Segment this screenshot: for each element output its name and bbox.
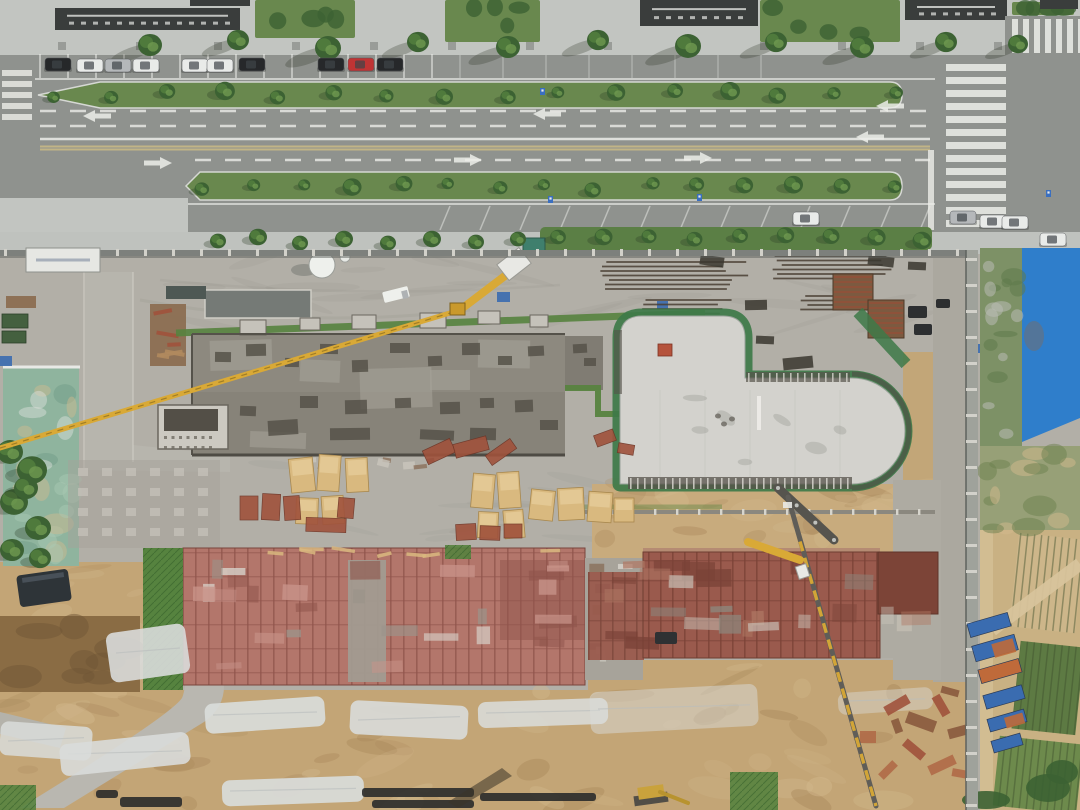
slab-void: [395, 398, 411, 409]
car: [376, 58, 404, 72]
wall-post: [956, 249, 959, 256]
pile-cap: [78, 528, 88, 536]
plywood-stack: [471, 473, 496, 509]
wall-post: [536, 249, 539, 256]
pile-cap: [102, 508, 112, 516]
formwork-pile: [908, 262, 926, 271]
wall-post: [788, 249, 791, 256]
wall-post: [896, 509, 898, 515]
pipe-stack: [96, 790, 118, 798]
plywood-stack: [528, 489, 555, 521]
construction-site: [0, 248, 986, 810]
pile-cap: [198, 468, 208, 476]
pile-cap: [174, 528, 184, 536]
crosswalk-stripe: [1056, 19, 1062, 53]
wall-post: [4, 249, 7, 256]
pile-cap: [174, 468, 184, 476]
stop-line: [928, 150, 934, 230]
pile-cap: [150, 488, 160, 496]
dumpster: [2, 331, 26, 343]
wall-post: [284, 249, 287, 256]
pile-cap: [174, 508, 184, 516]
pile-cap: [78, 488, 88, 496]
formwork-stack: [480, 526, 500, 541]
debris-pile: [6, 296, 36, 308]
stair-core: [352, 315, 376, 329]
red-building-east-end: [878, 552, 938, 614]
east-surroundings: [962, 248, 1080, 810]
slab-void: [528, 346, 544, 357]
tree-pit: [370, 42, 378, 50]
formwork-stack: [283, 495, 301, 520]
wall-post: [228, 249, 231, 256]
formwork-pile: [745, 300, 767, 311]
wall-post: [732, 249, 735, 256]
crosswalk-stripe: [1034, 19, 1040, 53]
slab-void: [440, 402, 460, 414]
wall-post: [480, 249, 483, 256]
plastic-sheeting: [589, 684, 759, 735]
slab-white-strip: [757, 396, 761, 430]
fence-post: [966, 596, 977, 599]
crane-cab: [450, 303, 465, 315]
crosswalk-stripe: [2, 70, 32, 76]
fence-post: [966, 258, 977, 261]
fence-post: [966, 570, 977, 573]
wall-post: [900, 249, 903, 256]
wall-post: [508, 249, 511, 256]
crosswalk-stripe: [2, 103, 32, 109]
formwork-stack: [261, 494, 280, 521]
pile-cap: [126, 488, 136, 496]
fence-post: [966, 804, 977, 807]
car: [44, 58, 72, 72]
wall-post: [742, 509, 744, 515]
slab-void: [480, 398, 494, 408]
wall-post: [928, 249, 931, 256]
pile-cap: [102, 468, 112, 476]
fence-post: [966, 752, 977, 755]
fence-post: [966, 336, 977, 339]
wall-post: [874, 509, 876, 515]
wall-post: [256, 249, 259, 256]
fence-post: [966, 388, 977, 391]
shoring-edge-south: [628, 477, 852, 489]
basement-opening: [164, 409, 218, 431]
wall-post: [676, 249, 679, 256]
formwork-pile: [756, 336, 774, 345]
red-container: [658, 344, 672, 356]
bus-shelter: [523, 238, 545, 252]
flat-roof-building: [640, 0, 758, 26]
car: [76, 59, 104, 73]
crosswalk-stripe: [946, 64, 1006, 71]
formwork-stack: [456, 523, 477, 540]
car: [792, 212, 820, 226]
slab-void: [573, 344, 587, 354]
car: [1001, 216, 1029, 230]
wall-post: [172, 249, 175, 256]
crosswalk-stripe: [946, 155, 1006, 162]
plywood-stack: [614, 498, 634, 522]
pile-cap: [102, 488, 112, 496]
pile-cap: [126, 468, 136, 476]
wall-post: [816, 249, 819, 256]
wall-post: [564, 249, 567, 256]
crosswalk-stripe: [2, 81, 32, 87]
flat-roof-building: [190, 0, 250, 6]
crosswalk-stripe: [946, 90, 1006, 97]
parked-van: [936, 299, 950, 308]
flat-roof-building: [905, 0, 1007, 20]
fence-post: [966, 492, 977, 495]
wall-post: [592, 249, 595, 256]
pile-cap: [126, 508, 136, 516]
fence-post: [966, 674, 977, 677]
wall-post: [698, 509, 700, 515]
pile-cap: [150, 468, 160, 476]
wall-post: [830, 509, 832, 515]
tree-pit: [292, 42, 300, 50]
wall-post: [760, 249, 763, 256]
wall-post: [786, 509, 788, 515]
pipe-stack: [120, 797, 182, 807]
stair-core: [478, 311, 500, 324]
pile-cap: [78, 508, 88, 516]
car: [317, 58, 345, 72]
stair-core: [240, 320, 266, 335]
site-container: [166, 286, 206, 299]
wall-post: [620, 249, 623, 256]
formwork-stack: [337, 497, 355, 518]
fence-post: [966, 362, 977, 365]
plywood-stack: [497, 471, 521, 508]
car: [206, 59, 234, 73]
fence-post: [966, 518, 977, 521]
fence-post: [966, 414, 977, 417]
aerial-photo-construction-site: [0, 0, 1080, 810]
car: [238, 58, 266, 72]
scene: [0, 0, 1080, 810]
crosswalk-stripe: [1067, 19, 1073, 53]
slab-void: [462, 343, 480, 355]
tree-pit: [526, 42, 534, 50]
car: [1039, 233, 1067, 247]
stair-core: [300, 318, 320, 330]
trolley: [783, 502, 792, 508]
wall-post: [340, 249, 343, 256]
plywood-stack: [317, 454, 341, 491]
formwork-stack: [504, 524, 522, 538]
car: [181, 59, 209, 73]
plastic-sheeting: [349, 700, 469, 740]
dark-vehicle: [655, 632, 677, 644]
flat-roof-building: [55, 8, 240, 30]
slab-void: [330, 428, 370, 440]
fence-post: [966, 700, 977, 703]
wall-post: [654, 509, 656, 515]
fence-post: [966, 440, 977, 443]
plywood-stack: [587, 491, 613, 523]
plywood-stack: [288, 457, 315, 493]
pile-cap: [150, 508, 160, 516]
boundary-wall-west: [0, 250, 26, 256]
slab-void: [515, 400, 533, 413]
plywood-stack: [557, 487, 585, 520]
crosswalk-stripe: [2, 114, 32, 120]
plastic-sheeting: [222, 776, 365, 807]
wall-post: [872, 249, 875, 256]
pile-cap: [174, 488, 184, 496]
plywood-stack: [345, 457, 369, 492]
formwork-stack: [240, 496, 258, 520]
pile-cap: [198, 528, 208, 536]
slab-void: [352, 360, 368, 373]
car: [104, 59, 132, 73]
wall-post: [852, 509, 854, 515]
pile-cap: [198, 508, 208, 516]
dumpster: [2, 314, 28, 328]
wall-post: [648, 249, 651, 256]
flat-roof-building: [1040, 0, 1078, 9]
crosswalk-stripe: [946, 181, 1006, 188]
wall-post: [704, 249, 707, 256]
slab-void: [584, 358, 596, 366]
pile-cap: [102, 528, 112, 536]
fence-post: [966, 544, 977, 547]
slab-void: [300, 396, 318, 408]
wall-post: [676, 509, 678, 515]
slab-void: [498, 356, 512, 365]
slab-void: [246, 344, 266, 356]
crosswalk-stripe: [2, 92, 32, 98]
crosswalk-stripe: [946, 77, 1006, 84]
pipe-stack: [480, 793, 596, 801]
formwork-stack: [306, 517, 346, 532]
fence-post: [966, 310, 977, 313]
wall-post: [200, 249, 203, 256]
pipe-stack: [362, 788, 474, 797]
slab-void: [240, 406, 256, 417]
wall-post: [116, 249, 119, 256]
pile-cap: [198, 488, 208, 496]
fence-post: [966, 778, 977, 781]
wall-post: [918, 509, 920, 515]
pile-cap: [78, 468, 88, 476]
wall-post: [368, 249, 371, 256]
crosswalk-stripe: [946, 194, 1006, 201]
pond-smudge: [1024, 321, 1044, 351]
crosswalk-stripe: [946, 142, 1006, 149]
stair-core: [530, 315, 548, 327]
car: [949, 211, 977, 225]
wall-post: [452, 249, 455, 256]
slab-void: [345, 400, 367, 414]
blue-tarp: [0, 356, 12, 366]
tree: [0, 539, 24, 561]
crosswalk-stripe: [1045, 19, 1051, 53]
slab-void: [268, 419, 299, 436]
site-driveway: [85, 272, 133, 468]
pile-cap: [150, 528, 160, 536]
crosswalk-stripe: [946, 116, 1006, 123]
crosswalk-stripe: [946, 168, 1006, 175]
water-basin: [205, 290, 311, 318]
plastic-sheeting: [0, 721, 93, 761]
pile-cap-grid: [68, 460, 220, 548]
wall-post: [764, 509, 766, 515]
wall-post: [424, 249, 427, 256]
fence-post: [966, 726, 977, 729]
crosswalk-stripe: [946, 129, 1006, 136]
pile-cap: [126, 528, 136, 536]
car: [132, 59, 160, 73]
fence-post: [966, 284, 977, 287]
fence-post: [966, 466, 977, 469]
wall-post: [720, 509, 722, 515]
parked-van: [914, 324, 932, 335]
blue-tarp: [497, 292, 510, 302]
tree-pit: [58, 42, 66, 50]
slab-void: [390, 343, 410, 353]
wall-post: [844, 249, 847, 256]
tree-pit: [448, 42, 456, 50]
car: [347, 58, 375, 72]
slab-void: [428, 356, 442, 367]
rebar-shed: [833, 274, 873, 310]
rusty-material: [860, 731, 876, 743]
slab-void: [540, 420, 558, 430]
parked-van: [908, 306, 927, 318]
wall-post: [396, 249, 399, 256]
wall-post: [144, 249, 147, 256]
crosswalk-stripe: [946, 103, 1006, 110]
slab-void: [215, 352, 231, 362]
plastic-sheeting: [478, 698, 609, 729]
wall-post: [312, 249, 315, 256]
